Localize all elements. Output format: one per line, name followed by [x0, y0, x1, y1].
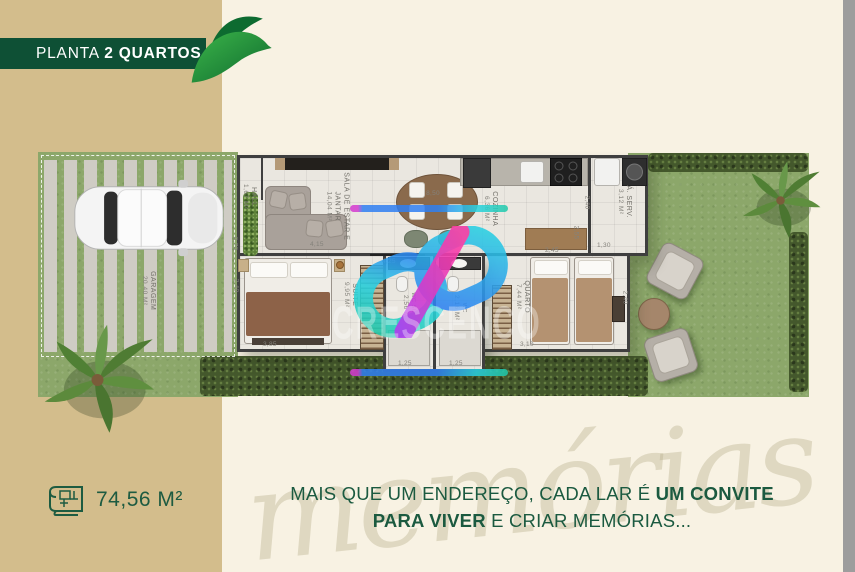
dim-suite-left: 2,40 — [232, 279, 239, 293]
palm-tree-left — [30, 320, 165, 440]
kitchen-sink — [520, 161, 544, 183]
bird-logo-icon — [183, 8, 275, 88]
dim-cozinha-right: 2,55 — [572, 226, 579, 240]
slogan-line-2: PARA VIVER E CRIAR MEMÓRIAS... — [282, 507, 782, 534]
room-label-garagem: GARAGEM 20,40 m² — [139, 251, 157, 331]
area-value: 74,56 M² — [96, 488, 183, 512]
dim-quarto-right: 2,40 — [621, 291, 628, 305]
quarto-pillow-2 — [578, 260, 612, 275]
dim-serv-left: 2,40 — [583, 196, 590, 210]
slogan: MAIS QUE UM ENDEREÇO, CADA LAR É UM CONV… — [282, 480, 782, 534]
sofa-cushion-3 — [305, 219, 324, 238]
suite-nightstand-1 — [238, 259, 249, 272]
room-name: HALL — [249, 187, 258, 207]
hall-wall — [261, 155, 263, 200]
blueprint-icon — [48, 483, 86, 517]
page: GARAGEM 20,40 m² — [0, 0, 855, 572]
dim-suite-bottom: 3,85 — [263, 341, 277, 348]
stove — [550, 158, 582, 186]
sofa-cushion-2 — [288, 192, 307, 211]
dim-quarto-top: 2,45 — [545, 247, 559, 254]
dim-serv-bottom: 1,30 — [597, 242, 611, 249]
dim-top: 8,50 — [413, 190, 453, 197]
suite-pillow-2 — [290, 262, 328, 278]
room-name: GARAGEM — [148, 271, 157, 310]
quarto-blanket-2 — [576, 278, 612, 342]
brand-watermark-text: CRESCENCO — [332, 298, 528, 351]
slogan-line-1: MAIS QUE UM ENDEREÇO, CADA LAR É UM CONV… — [282, 480, 782, 507]
dim-sala-left: 0,70 — [231, 237, 238, 251]
slogan-l1-regular: MAIS QUE UM ENDEREÇO, CADA LAR É — [290, 483, 655, 504]
dim-wc1-bottom: 1,25 — [398, 360, 412, 367]
area-badge: 74,56 M² — [48, 483, 183, 517]
banner-title: PLANTA 2 QUARTOS — [36, 45, 202, 63]
dim-wc2-bottom: 1,25 — [449, 360, 463, 367]
suite-pillow-1 — [250, 262, 288, 278]
room-area: 1,67 m² — [240, 184, 248, 210]
room-area: 14,04 m² — [324, 191, 332, 221]
watermark-bar-top — [350, 205, 508, 212]
car-top-view — [70, 177, 228, 259]
hedge-right — [789, 232, 808, 392]
room-label-hall: HALL 1,67 m² — [240, 167, 258, 227]
room-label-sala: SALA DE ESTAR E JANTAR 14,04 m² — [324, 156, 351, 256]
quarto-pillow-1 — [534, 260, 568, 275]
room-area: 20,40 m² — [139, 276, 147, 306]
suite-blanket — [246, 292, 330, 336]
garden-pouf — [638, 298, 670, 330]
palm-tree-right — [738, 158, 823, 243]
plan-banner: PLANTA 2 QUARTOS — [0, 38, 206, 69]
slogan-l1-bold: UM CONVITE — [656, 483, 774, 504]
dim-sala-width: 4,15 — [310, 241, 324, 248]
tv-panel-wood-right — [389, 158, 399, 170]
room-label-serv: Á. SERV. 3,12 m² — [615, 167, 633, 237]
banner-title-regular: PLANTA — [36, 45, 104, 62]
slogan-l2-regular: E CRIAR MEMÓRIAS... — [486, 510, 691, 531]
right-edge-strip — [843, 0, 855, 572]
watermark-bar-bottom — [350, 369, 508, 376]
tv-panel-wood-left — [275, 158, 285, 170]
sofa-cushion-1 — [268, 189, 288, 209]
room-name: Á. SERV. — [624, 185, 633, 218]
room-area: 3,12 m² — [615, 189, 623, 215]
slogan-l2-bold: PARA VIVER — [373, 510, 486, 531]
